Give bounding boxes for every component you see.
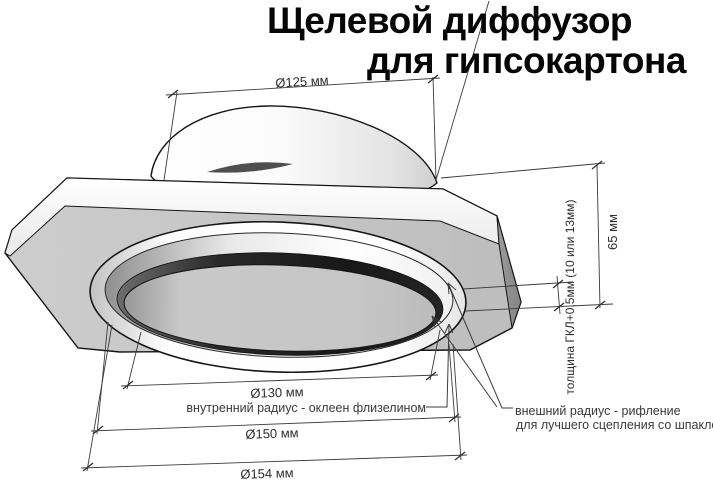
dim-label-d154: Ø154 мм (240, 465, 294, 481)
note-inner-radius: внутренний радиус - оклеен флизелином (186, 401, 426, 415)
page-title-line1: Щелевой диффузор (267, 0, 632, 41)
diagram-canvas: Щелевой диффузор для гипсокартона Ø125 м… (0, 0, 713, 500)
technical-drawing: Щелевой диффузор для гипсокартона Ø125 м… (0, 0, 713, 500)
page-title-line2: для гипсокартона (367, 40, 687, 81)
dim-label-thickness: толщина ГКЛ+0,5мм (10 или 13мм) (563, 199, 577, 394)
dim-label-h65: 65 мм (605, 214, 620, 250)
dim-label-d150: Ø150 мм (245, 425, 299, 442)
note-outer-radius-line2: для лучшего сцепления со шпаклёвкой (516, 418, 713, 432)
note-outer-radius-line1: внешний радиус - рифление (515, 404, 681, 418)
dim-label-d130: Ø130 мм (250, 384, 304, 401)
dim-label-d125: Ø125 мм (275, 72, 329, 90)
